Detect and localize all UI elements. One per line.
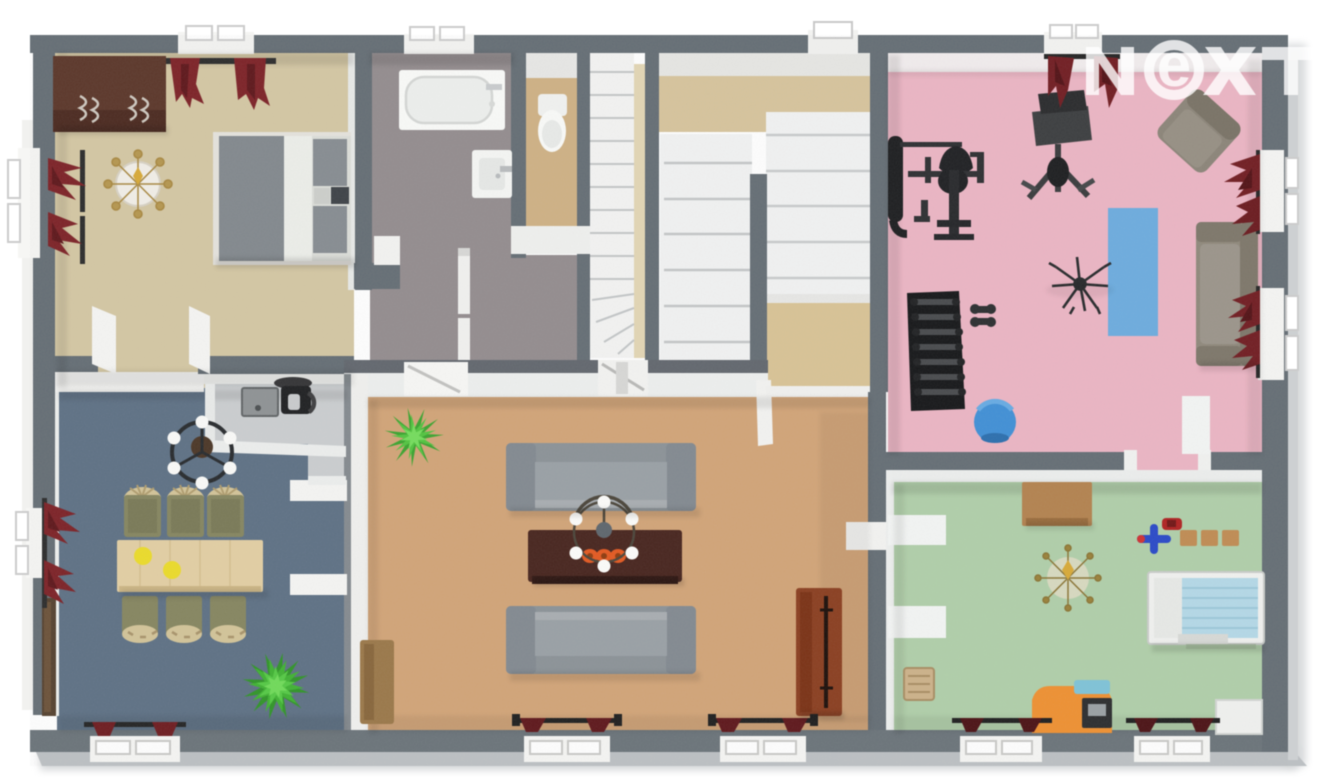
svg-text:e: e bbox=[1157, 31, 1191, 100]
